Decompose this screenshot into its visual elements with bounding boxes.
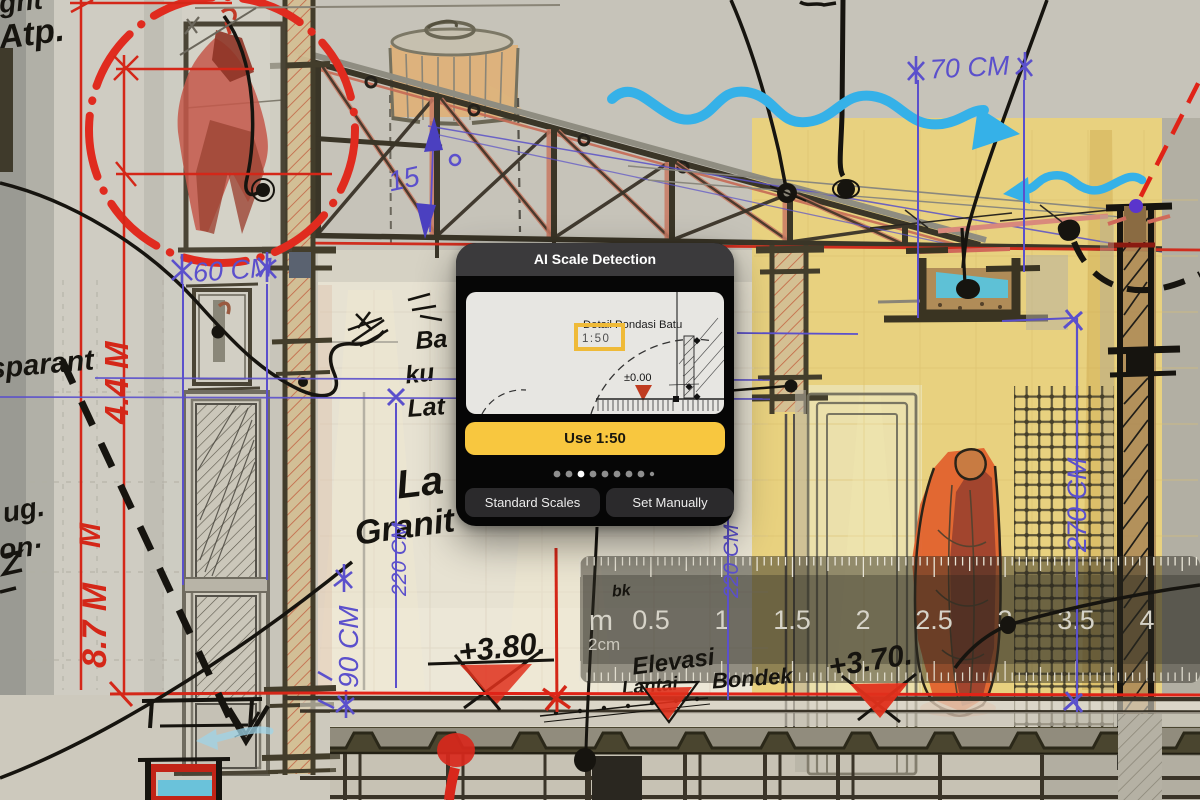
svg-text:220 CM: 220 CM	[388, 522, 411, 597]
svg-text:70 CM: 70 CM	[929, 50, 1010, 84]
svg-text:±0.00: ±0.00	[624, 372, 651, 384]
svg-text:Ba: Ba	[414, 325, 448, 355]
svg-text:on·: on·	[0, 530, 44, 565]
svg-text:ku: ku	[404, 359, 436, 390]
svg-text:2: 2	[855, 605, 870, 635]
svg-text:0.5: 0.5	[632, 605, 670, 635]
svg-text:2cm: 2cm	[588, 635, 620, 654]
svg-text:220 CM: 220 CM	[720, 524, 743, 599]
svg-text:2.5: 2.5	[915, 605, 953, 635]
svg-text:4: 4	[1139, 605, 1154, 635]
svg-text:M: M	[74, 522, 107, 548]
svg-text:4.4 M: 4.4 M	[98, 340, 135, 425]
svg-text:1:50: 1:50	[582, 333, 610, 345]
svg-text:1.5: 1.5	[773, 605, 811, 635]
svg-text:8.7 M: 8.7 M	[76, 582, 114, 668]
svg-text:Lat: Lat	[406, 392, 447, 423]
svg-text:m: m	[589, 605, 613, 637]
svg-text:La: La	[394, 458, 446, 507]
svg-text:bk: bk	[611, 582, 632, 601]
svg-text:90 CM: 90 CM	[333, 605, 364, 688]
